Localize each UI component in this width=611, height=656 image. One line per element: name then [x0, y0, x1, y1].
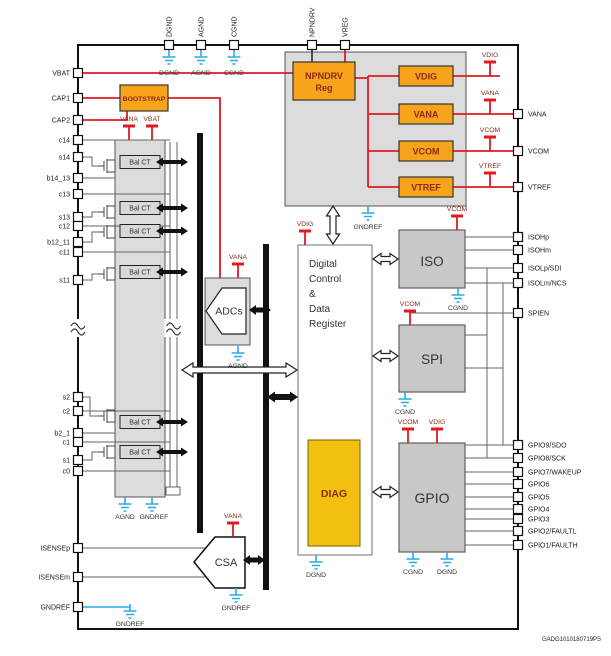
pin-label: b14_13: [47, 176, 70, 183]
pin-s1: [74, 456, 83, 465]
pin-label: s14: [59, 155, 70, 162]
pin-cgnd: [230, 41, 239, 50]
block-bootstrap: BOOTSTRAP: [120, 85, 168, 111]
tap-label: VCOM: [400, 301, 421, 308]
pin-isolm-ncs: [514, 279, 523, 288]
pin-label: GNDREF: [40, 605, 70, 612]
digital-label-line1: Digital: [309, 259, 337, 270]
pin-gpio6: [514, 480, 523, 489]
tap-label: VDIG: [482, 52, 499, 59]
block-diag: DIAG: [308, 440, 360, 546]
pin-label: s13: [59, 215, 70, 222]
ground-label: GNDREF: [222, 605, 251, 612]
pin-s14: [74, 153, 83, 162]
pin-label: VTREF: [528, 185, 551, 192]
pin-label: ISOLp/SDI: [528, 266, 562, 273]
pin-label: GPIO8/SCK: [528, 456, 566, 463]
pin-label: b12_11: [47, 240, 70, 247]
bal-ct-label: Bal CT: [129, 270, 151, 277]
pin-b12-11: [74, 238, 83, 247]
pin-c12: [74, 222, 83, 231]
bal-ct-label: Bal CT: [129, 160, 151, 167]
block-gpio: GPIO: [399, 443, 465, 552]
pin-gndref: [74, 603, 83, 612]
pin-label: GPIO6: [528, 482, 550, 489]
tap-label: VCOM: [447, 206, 468, 213]
pin-cap1: [74, 94, 83, 103]
pin-label: s1: [63, 458, 71, 465]
pin-c2: [74, 407, 83, 416]
block-vdig-ldo: VDIG: [399, 66, 453, 86]
pin-vcom: [514, 147, 523, 156]
spi-label: SPI: [421, 352, 443, 367]
tap-label: VCOM: [480, 127, 501, 134]
pin-label: DGND: [167, 16, 174, 37]
block-npndrv-reg: NPNDRV Reg: [293, 62, 355, 100]
pin-gpio7-wakeup: [514, 468, 523, 477]
pin-label: s2: [63, 395, 71, 402]
tap-label: VTREF: [479, 163, 501, 170]
ground-label: CGND: [395, 409, 415, 416]
pin-c11: [74, 248, 83, 257]
pin-gpio2-faultl: [514, 527, 523, 536]
ground-label: GNDREF: [354, 224, 383, 231]
pin-label: c14: [59, 138, 70, 145]
pin-label: CGND: [232, 16, 239, 37]
pin-isohp: [514, 233, 523, 242]
ground-label: CGND: [224, 70, 244, 77]
pin-vbat: [74, 69, 83, 78]
pin-isohm: [514, 246, 523, 255]
pin-label: ISENSEp: [40, 546, 70, 553]
pin-label: SPIEN: [528, 311, 549, 318]
block-diagram: Bal CT Bal CT Bal CT Bal CT Bal CT Bal C…: [0, 0, 611, 651]
pin-isolp-sdi: [514, 264, 523, 273]
pin-label: GPIO4: [528, 507, 550, 514]
gpio-label: GPIO: [414, 490, 449, 506]
pin-s2: [74, 393, 83, 402]
bal-ct-label: Bal CT: [129, 206, 151, 213]
pin-label: c0: [63, 469, 71, 476]
bal-ct-label: Bal CT: [129, 450, 151, 457]
pin-isensep: [74, 544, 83, 553]
vtref-label: VTREF: [411, 183, 441, 193]
pin-s11: [74, 276, 83, 285]
pin-label: AGND: [199, 17, 206, 37]
pin-label: c1: [63, 440, 71, 447]
bal-ct-label: Bal CT: [129, 420, 151, 427]
pin-dgnd: [165, 41, 174, 50]
pin-gpio3: [514, 515, 523, 524]
ground-label: CGND: [448, 305, 468, 312]
pin-label: ISOLm/NCS: [528, 281, 567, 288]
pin-gpio8-sck: [514, 454, 523, 463]
top-pins: DGND AGND CGND NPNDRV VREG: [165, 7, 350, 49]
vana-label: VANA: [414, 110, 439, 120]
digital-label-line4: Data: [309, 304, 331, 315]
pin-label: VCOM: [528, 149, 549, 156]
pin-label: c2: [63, 409, 71, 416]
right-pins: VANA VCOM VTREF ISOHp ISOHm ISOLp/SDI IS…: [514, 110, 582, 550]
pin-c1: [74, 438, 83, 447]
pin-label: CAP1: [52, 96, 70, 103]
bootstrap-label: BOOTSTRAP: [123, 96, 166, 103]
pin-label: c13: [59, 192, 70, 199]
ground-label: CGND: [403, 569, 423, 576]
pin-label: GPIO1/FAULTH: [528, 543, 578, 550]
pin-c0: [74, 467, 83, 476]
ground-label: GNDREF: [116, 621, 145, 628]
pin-vana: [514, 110, 523, 119]
pin-label: GPIO2/FAULTL: [528, 529, 577, 536]
pin-label: VREG: [343, 17, 350, 37]
pin-label: CAP2: [52, 118, 70, 125]
adcs-label: ADCs: [215, 306, 242, 318]
pin-label: c12: [59, 224, 70, 231]
digital-label-line5: Register: [309, 319, 347, 330]
digital-label-line3: &: [309, 289, 316, 300]
pin-vreg: [341, 41, 350, 50]
pin-c14: [74, 136, 83, 145]
tap-label: VANA: [120, 116, 138, 123]
tap-label: VDIG: [297, 221, 314, 228]
tap-label: VANA: [224, 513, 242, 520]
ground-label: AGND: [228, 363, 248, 370]
pin-isensem: [74, 573, 83, 582]
pin-label: GPIO3: [528, 517, 550, 524]
ground-label: GNDREF: [140, 514, 169, 521]
pin-label: NPNDRV: [310, 7, 317, 37]
bal-ct-label: Bal CT: [129, 229, 151, 236]
pin-vtref: [514, 183, 523, 192]
pin-label: GPIO5: [528, 495, 550, 502]
pin-label: b2_1: [54, 431, 70, 438]
pin-agnd: [197, 41, 206, 50]
block-vana-ldo: VANA: [399, 104, 453, 124]
vdig-label: VDIG: [415, 72, 437, 82]
tap-label: VANA: [481, 90, 499, 97]
ground-label: DGND: [306, 572, 326, 579]
pin-label: VBAT: [52, 71, 70, 78]
figure-id: GADG1010180719PS: [542, 637, 601, 643]
pin-s13: [74, 213, 83, 222]
digital-bus: [263, 244, 269, 590]
csa-label: CSA: [215, 557, 238, 569]
pin-label: ISOHm: [528, 248, 551, 255]
break-icon: [69, 319, 87, 337]
diag-label: DIAG: [321, 488, 347, 500]
digital-label-line2: Control: [309, 274, 341, 285]
pin-label: s11: [59, 278, 70, 285]
tap-label: VDIG: [429, 419, 446, 426]
tap-label: VANA: [229, 254, 247, 261]
pin-b2-1: [74, 429, 83, 438]
pin-label: GPIO9/SDO: [528, 443, 567, 450]
ground-label: AGND: [191, 70, 211, 77]
pin-gpio1-faulth: [514, 541, 523, 550]
ground-label: DGND: [437, 569, 457, 576]
left-pins: VBAT CAP1 CAP2 c14 s14 b14_13 c13 s13 c1…: [38, 69, 82, 612]
block-vcom-ldo: VCOM: [399, 141, 453, 161]
ground-label: AGND: [115, 514, 135, 521]
pin-npndrv: [308, 41, 317, 50]
pin-c13: [74, 190, 83, 199]
pin-gpio4: [514, 505, 523, 514]
pin-cap2: [74, 116, 83, 125]
iso-label: ISO: [420, 254, 443, 269]
vcom-label: VCOM: [413, 147, 440, 157]
npndrv-label-line1: NPNDRV: [305, 71, 343, 81]
npndrv-label-line2: Reg: [315, 83, 332, 93]
ground-label: DGND: [159, 70, 179, 77]
pin-b14-13: [74, 174, 83, 183]
pin-label: ISENSEm: [38, 575, 70, 582]
pin-gpio5: [514, 493, 523, 502]
pin-label: ISOHp: [528, 235, 549, 242]
pin-label: GPIO7/WAKEUP: [528, 470, 582, 477]
pin-spien: [514, 309, 523, 318]
block-vtref-ldo: VTREF: [399, 177, 453, 197]
pin-label: c11: [59, 250, 70, 257]
analog-bus: [197, 133, 203, 533]
pin-label: VANA: [528, 112, 547, 119]
tap-label: VBAT: [143, 116, 160, 123]
block-iso: ISO: [399, 230, 465, 288]
block-spi: SPI: [399, 325, 465, 392]
pin-gpio9-sdo: [514, 441, 523, 450]
tap-label: VCOM: [398, 419, 419, 426]
break-icon: [165, 319, 183, 337]
